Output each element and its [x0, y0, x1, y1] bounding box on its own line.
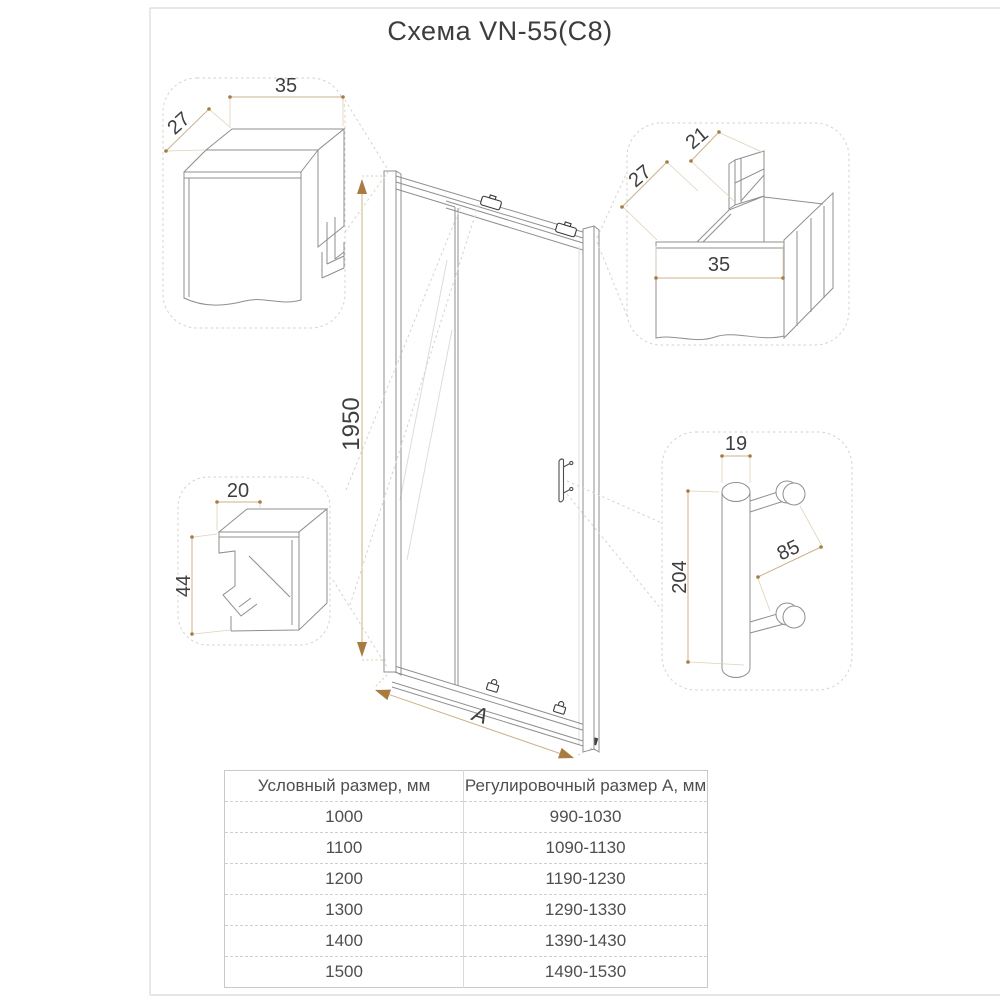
cell-adjustable: 1290-1330 [464, 895, 708, 926]
door-handle [559, 459, 573, 502]
cell-nominal: 1100 [225, 833, 464, 864]
col-header-nominal: Условный размер, мм [225, 771, 464, 802]
detail-top-rail-profile: 21 27 35 [620, 123, 833, 340]
cell-nominal: 1300 [225, 895, 464, 926]
col-header-adjustable: Регулировочный размер А, мм [464, 771, 708, 802]
table-row: 1200 1190-1230 [225, 864, 708, 895]
dim-door-height-label: 1950 [338, 397, 365, 450]
top-roller [555, 220, 578, 237]
callout-lines [333, 100, 662, 667]
dim-door-width-label: A [468, 700, 492, 729]
table-row: 1300 1290-1330 [225, 895, 708, 926]
cell-adjustable: 990-1030 [464, 802, 708, 833]
dim-toprail-width-label: 35 [708, 254, 730, 276]
dim-toprail-track-label: 21 [682, 123, 713, 154]
dim-bottomrail-width-label: 20 [227, 480, 249, 502]
cell-nominal: 1500 [225, 957, 464, 988]
detail-wall-profile: 35 27 [163, 75, 344, 305]
table-row: 1400 1390-1430 [225, 926, 708, 957]
dim-wall-width-label: 35 [275, 75, 297, 97]
table-row: 1100 1090-1130 [225, 833, 708, 864]
dim-handle-spacing-label: 85 [774, 536, 803, 565]
table-header-row: Условный размер, мм Регулировочный разме… [225, 771, 708, 802]
cell-nominal: 1000 [225, 802, 464, 833]
bottom-guide-clamp [486, 678, 500, 692]
cell-adjustable: 1090-1130 [464, 833, 708, 864]
table-row: 1500 1490-1530 [225, 957, 708, 988]
document-page: Схема VN-55(C8) [0, 0, 1000, 1000]
detail-bottom-rail-profile: 20 44 [173, 480, 327, 636]
dimension-door-width: A [373, 675, 592, 763]
door-drawing [384, 171, 599, 752]
cell-adjustable: 1490-1530 [464, 957, 708, 988]
dim-handle-diameter-label: 19 [725, 433, 747, 455]
size-table: Условный размер, мм Регулировочный разме… [224, 770, 708, 988]
dim-toprail-depth-label: 27 [625, 161, 656, 192]
top-roller [480, 193, 503, 210]
bottom-guide-clamp [553, 700, 567, 714]
dim-bottomrail-height-label: 44 [173, 575, 195, 597]
cell-adjustable: 1190-1230 [464, 864, 708, 895]
cell-adjustable: 1390-1430 [464, 926, 708, 957]
detail-handle: 19 204 85 [669, 433, 823, 678]
dim-handle-length-label: 204 [669, 560, 691, 593]
cell-nominal: 1400 [225, 926, 464, 957]
dim-wall-depth-label: 27 [163, 108, 194, 139]
table-row: 1000 990-1030 [225, 802, 708, 833]
cell-nominal: 1200 [225, 864, 464, 895]
